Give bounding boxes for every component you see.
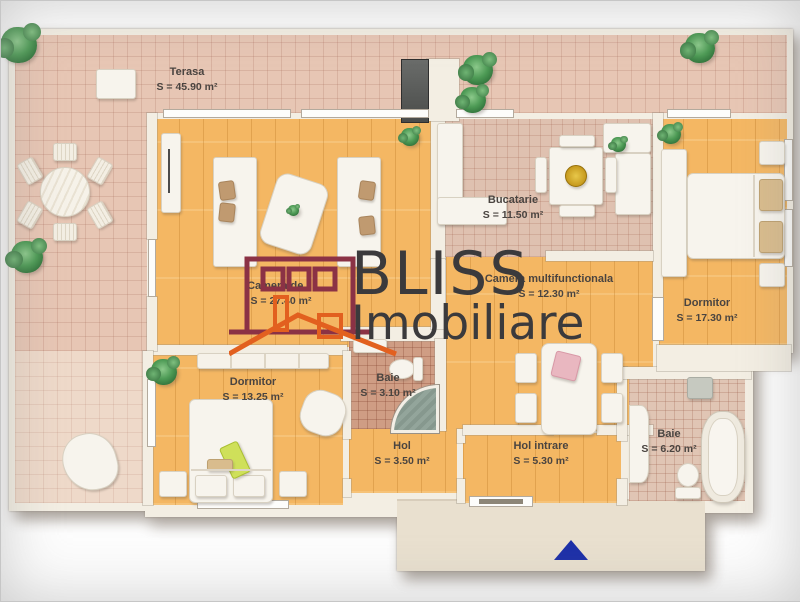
toilet [677,463,699,487]
plant-icon [11,241,43,273]
room-area: S = 45.90 m² [157,80,218,94]
room-label-hol-intrare: Hol intrare S = 5.30 m² [513,439,568,468]
room-area: S = 6.20 m² [641,442,696,456]
nightstand [159,471,187,497]
sofa-pillow [218,180,236,201]
terrace-door [148,239,156,297]
kitchen-counter [615,153,651,215]
nightstand [279,471,307,497]
plant-icon [401,128,419,146]
room-label-dormitor-mare: Dormitor S = 17.30 m² [677,296,738,325]
terrace-chair [53,223,77,241]
entrance-platform [397,499,705,571]
bed-fold [191,469,271,471]
entrance-arrow-icon [554,540,588,560]
brand-line1: BLISS [351,244,584,304]
bed-pillow [233,475,265,497]
room-label-baie-mare: Baie S = 6.20 m² [641,427,696,456]
wall [657,345,791,371]
window [147,379,156,447]
plant-icon [1,27,37,63]
window [163,109,291,118]
terrace-table [40,167,90,217]
brand-line2: Imobiliare [351,300,584,347]
window [301,109,429,118]
toilet-tank [675,487,701,499]
room-label-hol: Hol S = 3.50 m² [374,439,429,468]
room-name: Dormitor [677,296,738,311]
sofa-pillow [218,202,236,223]
plant-icon [661,124,681,144]
plant-icon [460,87,486,113]
room-label-terasa: Terasa S = 45.90 m² [157,65,218,94]
room-area: S = 3.50 m² [374,454,429,468]
wall [147,113,157,239]
room-name: Hol intrare [513,439,568,454]
sofa-pillow [358,180,376,201]
room-area: S = 17.30 m² [677,311,738,325]
plant-icon [685,33,715,63]
sofa-pillow [358,215,376,236]
chair [601,353,623,383]
plant-icon [463,55,493,85]
room-name: Dormitor [223,375,284,390]
chair [515,393,537,423]
bathroom-cabinet [687,377,713,399]
room-label-baie-mica: Baie S = 3.10 m² [360,371,415,400]
room-label-bucatarie: Bucatarie S = 11.50 m² [483,193,543,222]
tv [168,149,170,193]
bed-pillow [759,221,783,253]
room-name: Baie [360,371,415,386]
chair [515,353,537,383]
plant-icon [611,137,626,152]
window [667,109,731,118]
nightstand [759,141,785,165]
kitchen-chair [559,135,595,147]
window [784,209,793,267]
wall [617,479,627,505]
room-area: S = 5.30 m² [513,454,568,468]
wall [463,425,553,435]
fruit-bowl [565,165,587,187]
chair [601,393,623,423]
room-name: Terasa [157,65,218,80]
wall [343,479,351,497]
kitchen-chair [535,157,547,193]
wall-pillar [427,59,459,121]
room-label-dormitor-mic: Dormitor S = 13.25 m² [223,375,284,404]
bed-fold [753,175,755,257]
room-name: Bucatarie [483,193,543,208]
terrace-planter [96,69,136,99]
sideboard [161,133,181,213]
bed-pillow [195,475,227,497]
brand-text: BLISS Imobiliare [351,244,584,347]
wall [457,479,465,503]
room-name: Baie [641,427,696,442]
plant-icon [288,205,299,216]
room-area: S = 13.25 m² [223,390,284,404]
entrance-door-leaf [479,499,523,504]
terrace-chair [53,143,77,161]
room-name: Hol [374,439,429,454]
bathtub [701,411,745,503]
kitchen-chair [559,205,595,217]
wardrobe [661,149,687,277]
floor-plan-image: Terasa S = 45.90 m² Camera de zi S = 27.… [0,0,800,602]
plant-icon [151,359,177,385]
room-area: S = 11.50 m² [483,208,543,222]
room-terasa-left [15,113,147,351]
bed-pillow [759,179,783,211]
nightstand [759,263,785,287]
wall [147,297,157,351]
room-area: S = 3.10 m² [360,386,415,400]
wall [343,351,351,439]
bedroom-door [652,297,664,341]
window [784,139,793,201]
kitchen-chair [605,157,617,193]
